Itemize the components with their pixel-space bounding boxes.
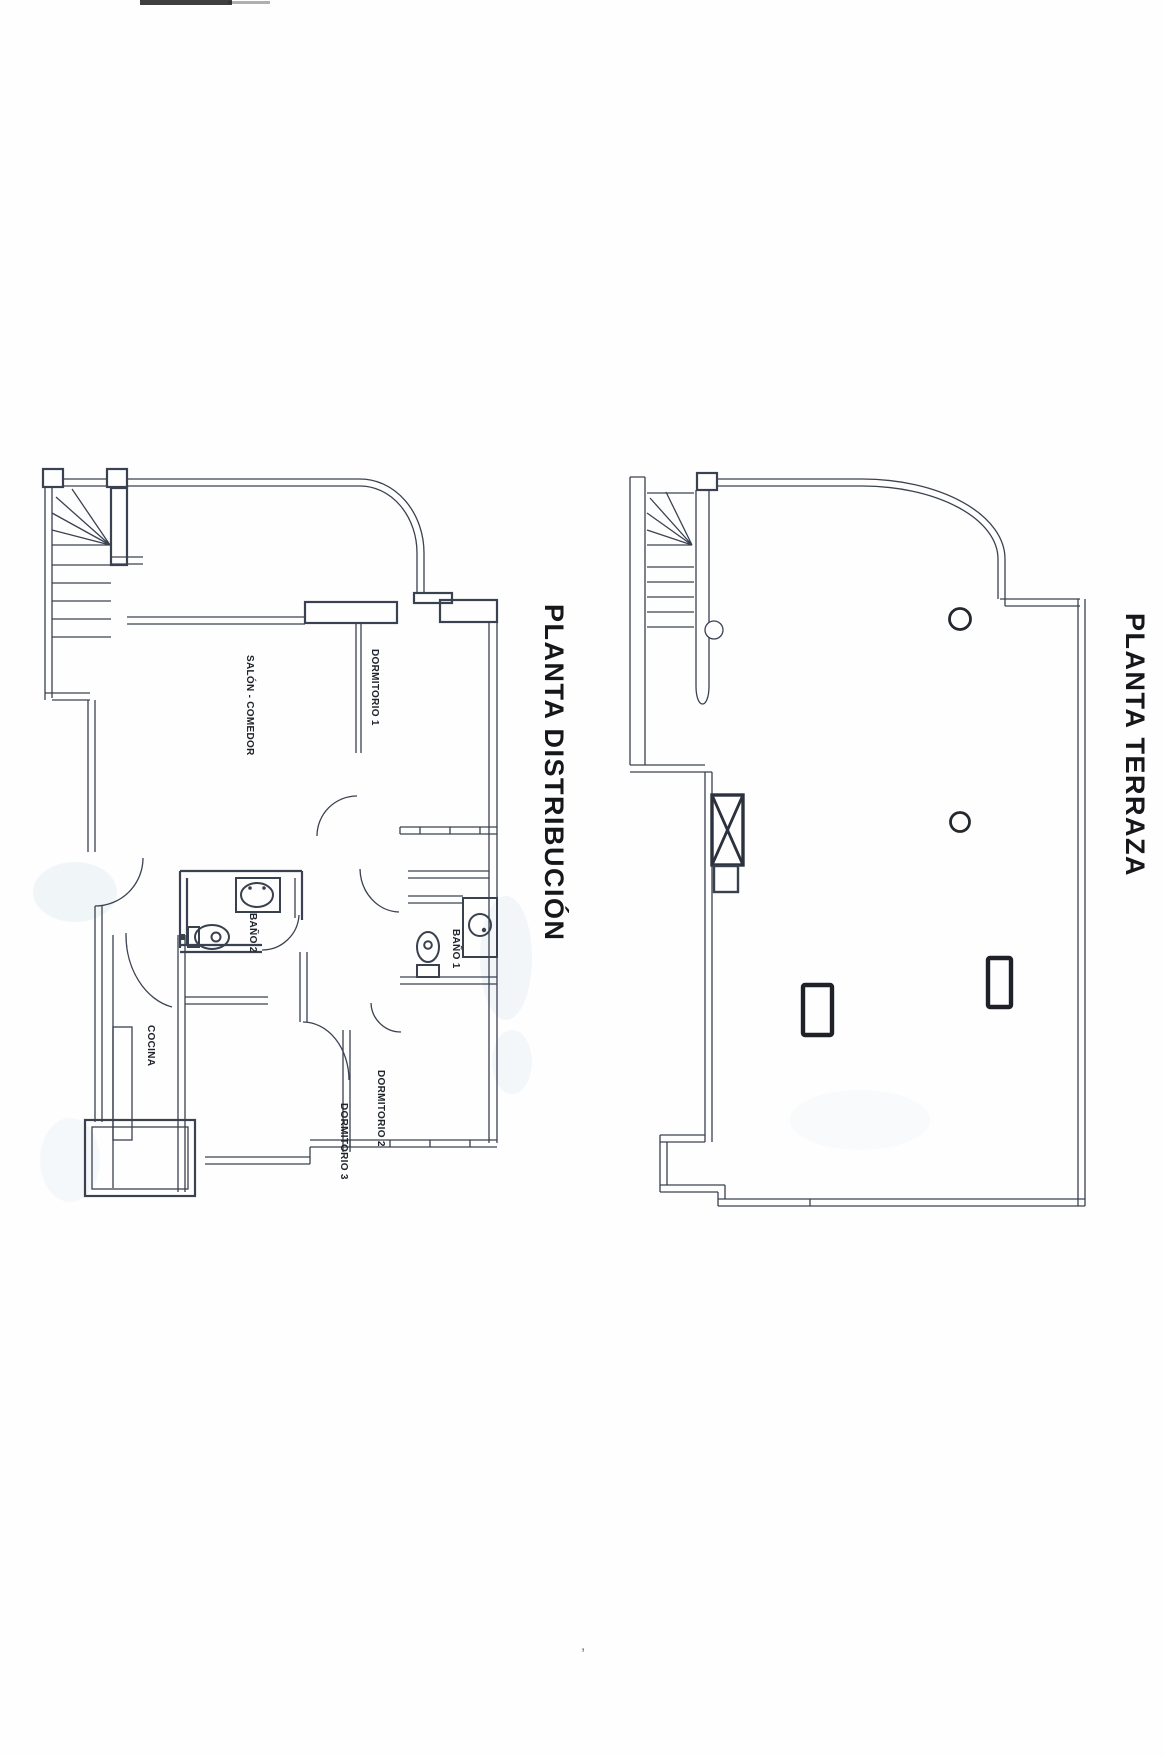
room-label-salon: SALÓN - COMEDOR — [244, 655, 257, 756]
plan-title-terraza: PLANTA TERRAZA — [1120, 613, 1150, 877]
distribucion-interior-walls — [113, 602, 497, 1192]
distribucion-staircase — [52, 488, 143, 637]
terraza-features — [712, 609, 1011, 1036]
room-label-bano1: BAÑO 1 — [450, 929, 463, 969]
room-label-dormitorio3: DORMITORIO 3 — [338, 1103, 349, 1180]
drain-icon — [950, 609, 971, 630]
scanned-sheet: SALÓN - COMEDOR DORMITORIO 1 BAÑO 2 BAÑO… — [0, 0, 1165, 1757]
bathroom2-fixtures — [180, 878, 280, 949]
terraza-staircase — [647, 490, 723, 704]
plan-distribucion: SALÓN - COMEDOR DORMITORIO 1 BAÑO 2 BAÑO… — [43, 469, 570, 1196]
shaft-hatch-icon — [712, 795, 743, 892]
plan-title-distribucion: PLANTA DISTRIBUCIÓN — [539, 604, 570, 941]
planter-icon — [803, 985, 832, 1035]
room-label-dormitorio2: DORMITORIO 2 — [375, 1070, 386, 1147]
room-label-cocina: COCINA — [145, 1025, 156, 1066]
planter-icon — [988, 958, 1011, 1007]
toilet-icon — [417, 932, 439, 977]
distribucion-outer-walls — [43, 469, 497, 1196]
room-label-bano2: BAÑO 2 — [247, 913, 260, 953]
drain-icon — [951, 813, 970, 832]
room-label-dormitorio1: DORMITORIO 1 — [369, 649, 380, 726]
stray-mark: , — [581, 1637, 585, 1654]
